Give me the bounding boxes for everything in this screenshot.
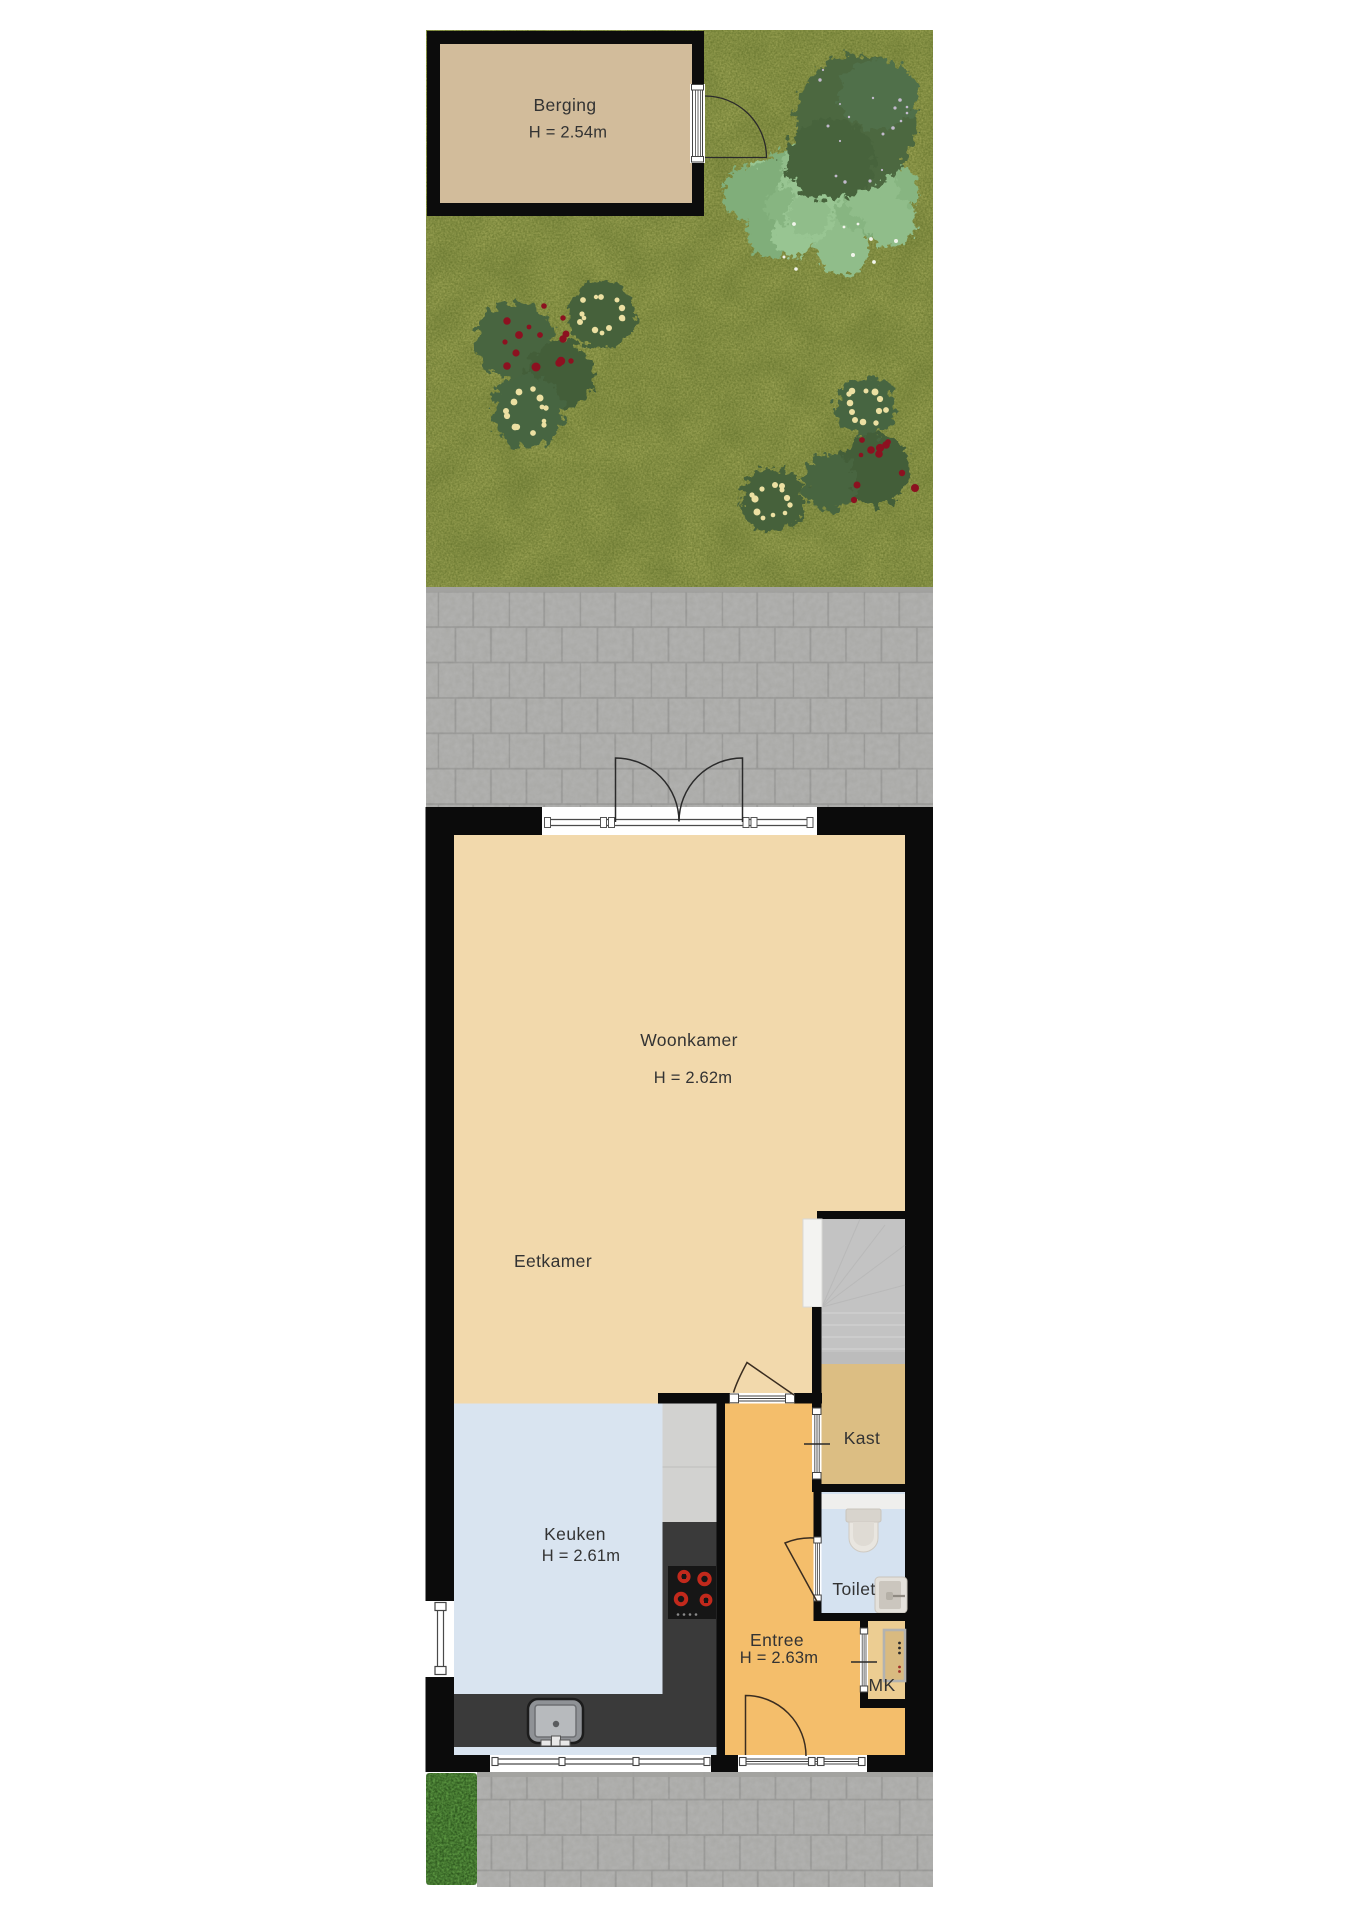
svg-text:MK: MK — [868, 1675, 895, 1695]
svg-text:Kast: Kast — [844, 1428, 881, 1448]
svg-text:H = 2.62m: H = 2.62m — [654, 1069, 732, 1087]
svg-text:H = 2.63m: H = 2.63m — [740, 1649, 818, 1667]
svg-text:H = 2.54m: H = 2.54m — [529, 124, 607, 142]
svg-text:Woonkamer: Woonkamer — [640, 1030, 738, 1050]
svg-text:Berging: Berging — [533, 95, 596, 115]
svg-text:Toilet: Toilet — [832, 1579, 875, 1599]
svg-text:Keuken: Keuken — [544, 1524, 606, 1544]
svg-text:Eetkamer: Eetkamer — [514, 1251, 592, 1271]
svg-text:Entree: Entree — [750, 1630, 804, 1650]
svg-text:H = 2.61m: H = 2.61m — [542, 1547, 620, 1565]
